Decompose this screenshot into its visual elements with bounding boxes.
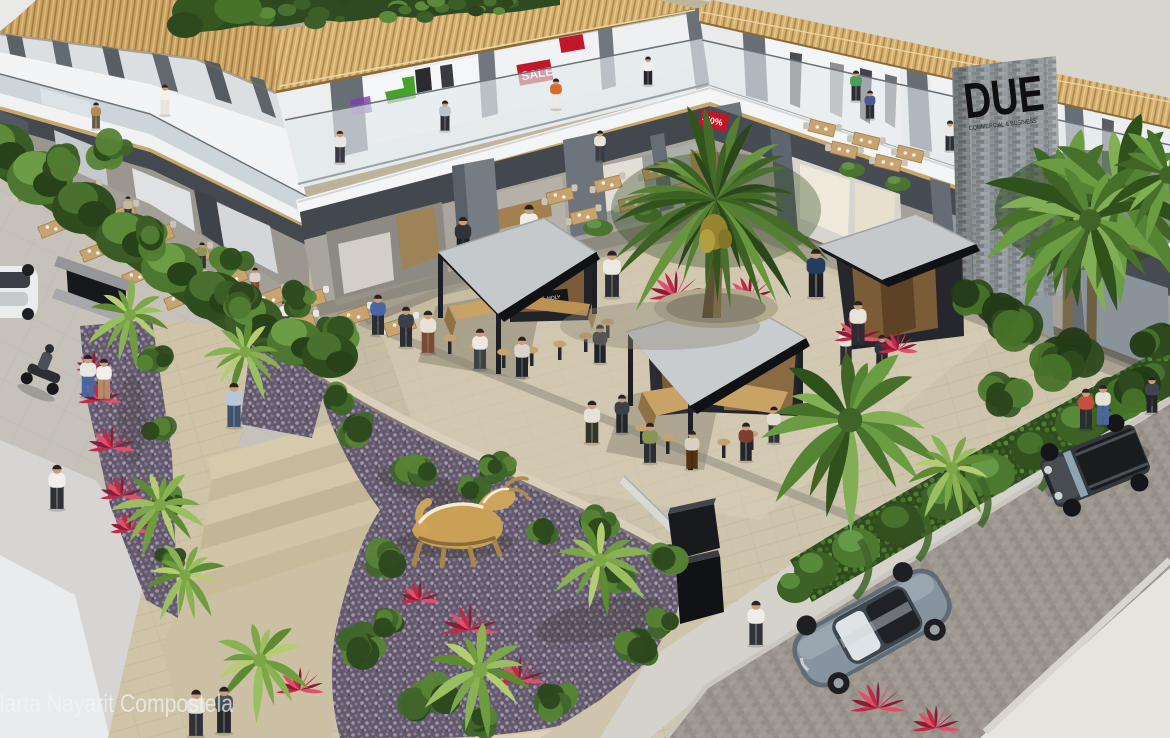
- svg-text:llarta Nayarit Compostela: llarta Nayarit Compostela: [0, 690, 233, 718]
